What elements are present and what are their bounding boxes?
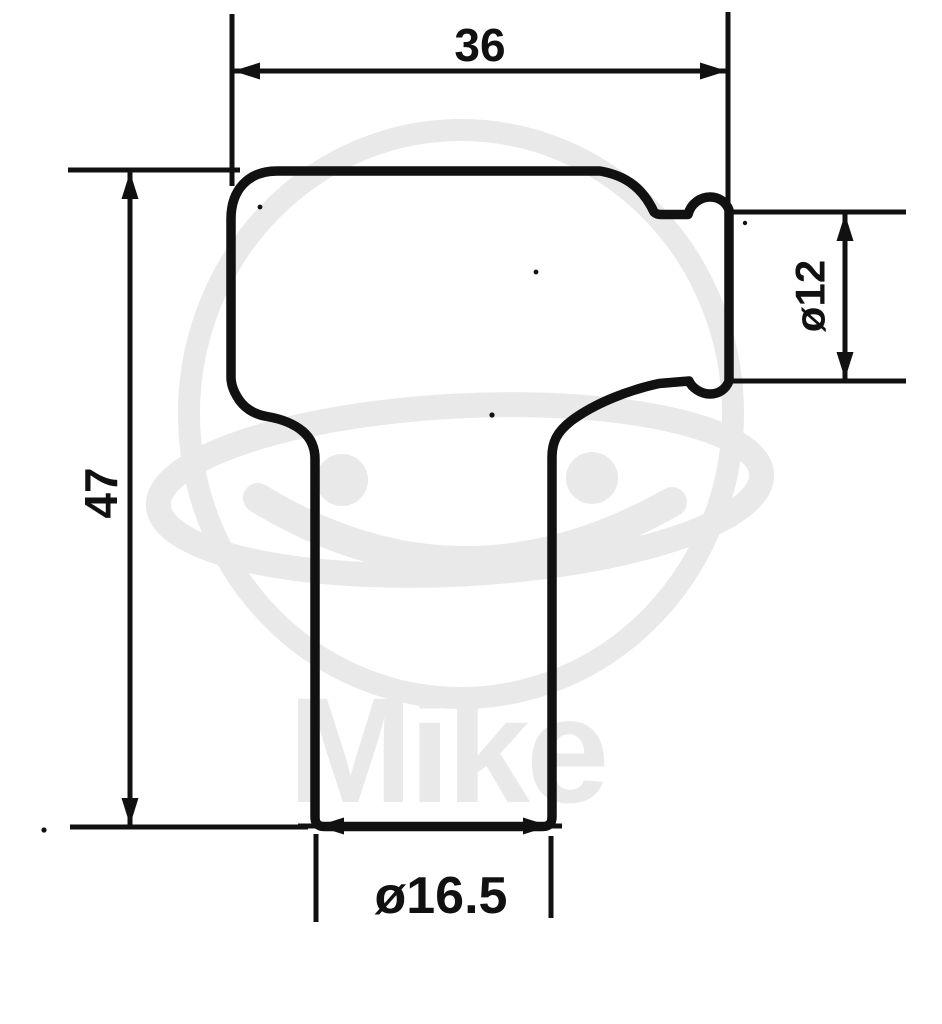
- arrowhead-down-icon: [837, 352, 854, 379]
- arrowhead-up-icon: [837, 214, 854, 241]
- dimension-label-terminal-diameter: ø12: [787, 260, 834, 332]
- technical-drawing-page: Mike 36 47: [0, 0, 942, 1024]
- scan-speck: [534, 270, 539, 275]
- scan-speck: [41, 827, 46, 832]
- dimension-label-height: 47: [75, 467, 127, 518]
- arrowhead-up-icon: [122, 172, 139, 199]
- watermark-right-eye-dot-icon: [566, 452, 618, 504]
- watermark-text: Mike: [288, 666, 605, 834]
- scan-speck: [489, 412, 494, 417]
- arrowhead-right-icon: [700, 63, 727, 80]
- scan-speck: [258, 205, 263, 210]
- scan-speck: [743, 221, 747, 225]
- spark-plug-cap-dimension-drawing: Mike 36 47: [0, 0, 942, 1024]
- dimension-label-width: 36: [454, 19, 505, 71]
- arrowhead-down-icon: [122, 798, 139, 825]
- watermark-left-eye-dot-icon: [316, 454, 368, 506]
- arrowhead-left-icon: [233, 63, 260, 80]
- dimension-terminal-diameter: ø12: [733, 212, 906, 381]
- watermark-logo: Mike: [154, 130, 766, 834]
- dimension-label-boot-diameter: ø16.5: [375, 867, 508, 925]
